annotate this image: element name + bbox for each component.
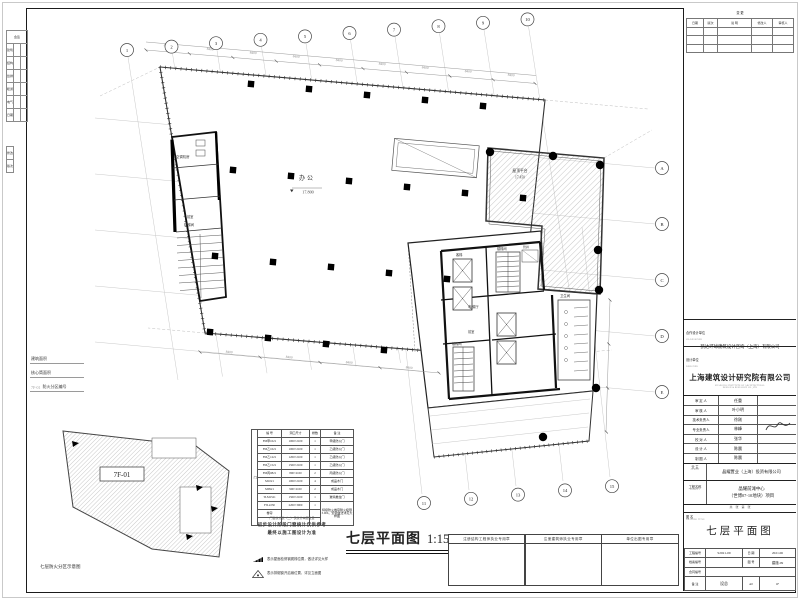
stamp-boxes: 注册结构工程师执业专用章 注册建筑师执业专用章 单位出图专用章 xyxy=(448,534,678,586)
stamp-box: 单位出图专用章 xyxy=(601,534,678,586)
drawing-sheet: { "sheet": { "main_title": "七层平面图", "mai… xyxy=(0,0,800,600)
drawing-title-text: 七层平面图 xyxy=(346,532,421,547)
revision-mark: 变 更 xyxy=(684,10,796,15)
project-name-line1: 晶耀前滩中心 xyxy=(738,485,764,492)
fields-row: 工程编号 S2021-09 日 期 2021.06 xyxy=(685,548,796,558)
ladder-icon xyxy=(252,556,264,563)
revision-header: 审核人 xyxy=(773,19,794,28)
drawing-name-sublabel: DRAWING TITLE xyxy=(686,519,705,521)
schedule-note-bold: 初步设计阶段门窗统计仅供参考 xyxy=(236,522,348,528)
project-row: 工程名称 PROJECT 晶耀前滩中心 （世博07-10地块）项目 xyxy=(684,480,796,504)
fields-row: 合同编号 xyxy=(685,567,796,577)
title-block: 变 更 日期 版次 说 明 修改人 审核人 合作设计单位 CO-DESIGNER… xyxy=(683,8,796,591)
personnel-row: 校 对 人张华 xyxy=(684,434,796,444)
designer-label: 设计单位 xyxy=(686,358,699,362)
schedule-row: FM乙15211500×21001乙级防火门 xyxy=(252,462,354,470)
schedule-header: 樘数 xyxy=(310,430,321,438)
designer-sublabel: DESIGNER xyxy=(686,366,794,368)
project-sublabel: PROJECT xyxy=(684,489,706,491)
signature-scribble xyxy=(764,418,792,434)
revision-empty-row xyxy=(687,36,794,45)
revision-header: 版次 xyxy=(704,19,718,28)
symbol-notes: 表示屋面检修钢爬梯位置，做法详见大样 表示排烟窗开启扇位置，详见立面图 xyxy=(252,556,351,585)
schedule-footer-row: FJL22302200×3000 1 特级防火卷帘耐火极限3.00h，安装做法详… xyxy=(252,502,354,510)
stamp-box-title: 注册结构工程师执业专用章 xyxy=(449,535,524,544)
strip-cell: 建筑 xyxy=(7,44,14,57)
keyplan-caption: 七层防火分区示意图 xyxy=(40,564,81,570)
legend-zone-code: 7F-01 xyxy=(31,385,41,390)
revision-strip: 修改 版次 xyxy=(6,146,14,173)
schedule-notes: 门窗统计表（二）仅统计本层数量 初步设计阶段门窗统计仅供参考 最终以施工图设计为… xyxy=(236,516,348,536)
client-name: 晶耀置业（上海）投资有限公司 xyxy=(707,464,796,480)
fields-row: 备 注 设总 A0 1F xyxy=(685,577,796,591)
co-designer-sublabel: CO-DESIGNER xyxy=(686,339,794,341)
sheet-frame xyxy=(26,8,796,593)
strip-cell: 给排 xyxy=(7,70,14,83)
schedule-row: FM乙10211000×21001乙级防火门 xyxy=(252,446,354,454)
legend-item: 建筑面积 xyxy=(30,350,84,364)
personnel-row: 审 核 人叶小明 xyxy=(684,405,796,415)
personnel-row: 审 定 人任重 xyxy=(684,396,796,405)
client-sublabel: CLIENT xyxy=(684,469,706,471)
signature-strip: 会签 建筑 结构 给排 暖通 电气 日期 xyxy=(6,30,28,122)
strip-cell: 修改 xyxy=(7,147,14,160)
schedule-row: FM甲10211000×21001甲级防火门 xyxy=(252,438,354,446)
personnel-table: 审 定 人任重 审 核 人叶小明 技术负责人徐刚 专业负责人林峰 校 对 人张华… xyxy=(684,395,796,462)
revision-empty-row xyxy=(687,27,794,36)
designer-name-en: DESIGN & RESEARCH CO.,LTD xyxy=(686,387,794,389)
fields-row: 档案编号 图 号 建施-09 xyxy=(685,558,796,568)
revision-header: 日期 xyxy=(687,19,704,28)
schedule-row: M10211000×21004成品木门 xyxy=(252,478,354,486)
schedule-row: M0921900×21002成品木门 xyxy=(252,486,354,494)
strip-cell: 电气 xyxy=(7,96,14,109)
symbol-note: 表示排烟窗开启扇位置，详见立面图 xyxy=(252,570,351,578)
revision-header: 说 明 xyxy=(718,19,752,28)
revision-empty-row xyxy=(687,44,794,53)
fields-table: 工程编号 S2021-09 日 期 2021.06 档案编号 图 号 建施-09… xyxy=(684,548,796,592)
strip-title: 会签 xyxy=(7,31,28,44)
stamp-box-title: 注册建筑师执业专用章 xyxy=(526,535,601,544)
schedule-header: 备 注 xyxy=(321,430,354,438)
schedule-note-small: 门窗统计表（二）仅统计本层数量 xyxy=(236,516,348,520)
schedule-row: TLM15211500×21001玻璃推拉门 xyxy=(252,494,354,502)
schedule-note-bold: 最终以施工图设计为准 xyxy=(236,530,348,536)
area-legend: 建筑面积 核心筒面积 7F-01 防火分区编号 xyxy=(30,350,84,392)
co-designer-label: 合作设计单位 xyxy=(686,331,705,335)
strip-cell: 暖通 xyxy=(7,83,14,96)
pages-row: 共 张 第 张 xyxy=(684,504,796,512)
schedule-row: FM丙0821800×21002丙级防火门 xyxy=(252,470,354,478)
co-designer-box: 合作设计单位 CO-DESIGNER 凯达环球建筑设计咨询（上海）有限公司 xyxy=(684,319,796,346)
vent-triangle-icon xyxy=(252,570,264,578)
project-name-line2: （世博07-10地块）项目 xyxy=(729,492,774,499)
drawing-name-box: 图 名 DRAWING TITLE 七层平面图 xyxy=(684,512,796,548)
stamp-box: 注册建筑师执业专用章 xyxy=(525,534,602,586)
personnel-row: 制 图 人陈晨 xyxy=(684,453,796,463)
personnel-row: 设 计 人陈晨 xyxy=(684,443,796,453)
stamp-box: 注册结构工程师执业专用章 xyxy=(448,534,525,586)
revision-table: 日期 版次 说 明 修改人 审核人 xyxy=(686,18,794,53)
legend-item: 7F-01 防火分区编号 xyxy=(30,378,84,392)
strip-cell: 日期 xyxy=(7,109,14,122)
strip-cell: 结构 xyxy=(7,57,14,70)
revision-header: 修改人 xyxy=(752,19,773,28)
designer-name: 上海建筑设计研究院有限公司 xyxy=(686,372,794,383)
client-row: 业 主 CLIENT 晶耀置业（上海）投资有限公司 xyxy=(684,463,796,480)
strip-cell: 版次 xyxy=(7,160,14,173)
schedule-row: FM乙12211200×21001乙级防火门 xyxy=(252,454,354,462)
designer-box: 设计单位 DESIGNER 上海建筑设计研究院有限公司 SHANGHAI INS… xyxy=(684,346,796,395)
schedule-header: 编 号 xyxy=(258,430,282,438)
symbol-note: 表示屋面检修钢爬梯位置，做法详见大样 xyxy=(252,556,351,563)
door-schedule-table: 门 编 号 洞口尺寸 樘数 备 注 FM甲10211000×21001甲级防火门… xyxy=(251,429,354,526)
schedule-header: 洞口尺寸 xyxy=(282,430,310,438)
stamp-box-title: 单位出图专用章 xyxy=(602,535,677,544)
legend-item: 核心筒面积 xyxy=(30,364,84,378)
